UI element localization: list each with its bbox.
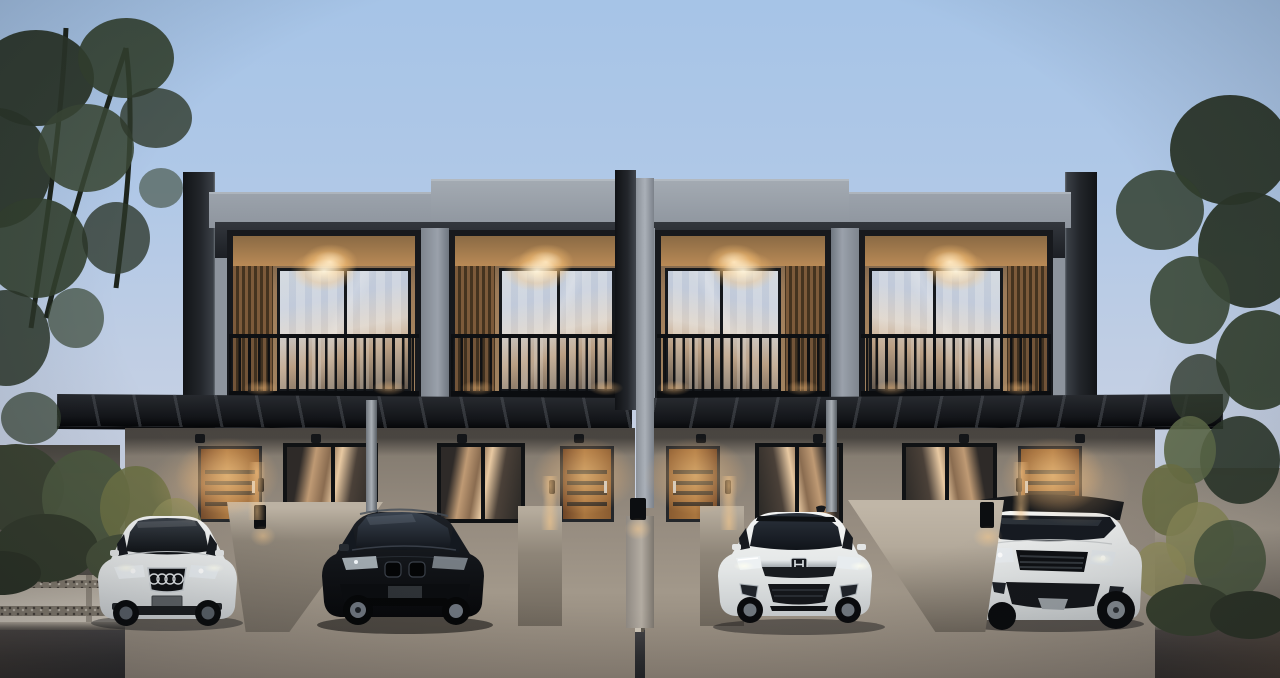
- balcony-end-unit: [859, 230, 1053, 398]
- headlight-core: [1101, 556, 1106, 561]
- ceiling-lamp: [959, 434, 969, 443]
- side-mirror: [857, 544, 866, 550]
- headlight-left: [736, 556, 762, 570]
- wheel-rim: [202, 607, 215, 620]
- balcony-divider-pillar: [831, 228, 859, 398]
- kidney-grille: [385, 562, 401, 577]
- headlight-left: [114, 565, 145, 579]
- door-handle: [673, 481, 676, 493]
- wall-sconce: [549, 480, 555, 494]
- car-white-audi-sedan: [86, 506, 248, 632]
- headlight-left: [342, 556, 378, 570]
- chin-spoiler: [770, 606, 828, 611]
- license-plate: [388, 586, 422, 598]
- twilight-townhouse-rendering: [0, 0, 1280, 678]
- balcony-inner-unit: [449, 230, 625, 398]
- balcony-downlight-glow: [509, 238, 583, 286]
- wheel-hub: [1113, 607, 1119, 613]
- fence-wall-center-left: [518, 506, 562, 626]
- wall-sconce: [725, 480, 731, 494]
- car-black-sedan: [312, 498, 498, 636]
- windshield-tint-band: [756, 516, 836, 522]
- headlight-core: [354, 560, 358, 564]
- lower-intake: [362, 598, 448, 606]
- ceiling-lamp: [574, 434, 584, 443]
- roof-parapet-raised: [431, 179, 632, 228]
- headlight-right: [189, 565, 220, 579]
- center-pillar: [636, 178, 654, 508]
- canopy-post: [826, 400, 837, 512]
- ceiling-lamp: [457, 434, 467, 443]
- car-shadow: [713, 619, 885, 635]
- wheel-rim: [449, 604, 463, 618]
- balcony-downlight-glow: [293, 238, 367, 286]
- balcony-railing: [451, 334, 623, 398]
- side-mirror: [732, 544, 741, 550]
- wheel-rim: [842, 604, 855, 617]
- wheel: [988, 602, 1016, 630]
- gate-lamp: [630, 498, 646, 520]
- kidney-grille: [409, 562, 425, 577]
- door-handle: [604, 481, 607, 493]
- headlight-right: [836, 556, 862, 570]
- balcony-railing: [861, 334, 1051, 398]
- wheel-rim: [120, 607, 133, 620]
- skid-plate: [1038, 598, 1068, 610]
- headlight-core: [998, 553, 1003, 558]
- balcony-downlight-glow: [697, 238, 771, 286]
- headlight-right: [432, 556, 468, 570]
- headlight-core: [131, 569, 136, 574]
- wheel-hub: [355, 607, 361, 613]
- balcony-inner-unit: [655, 230, 831, 398]
- balcony-divider-pillar: [421, 228, 449, 398]
- roof-parapet-raised: [648, 179, 849, 228]
- upper-grille: [762, 567, 836, 578]
- side-mirror: [110, 550, 119, 556]
- balcony-downlight-glow: [913, 238, 987, 286]
- gate-lamp: [980, 502, 994, 528]
- canopy-post: [366, 400, 377, 512]
- tree-foliage: [0, 18, 192, 444]
- wheel-rim: [744, 604, 757, 617]
- center-gate-post: [626, 516, 654, 628]
- ceiling-lamp: [311, 434, 321, 443]
- car-white-honda-civic: [706, 500, 892, 636]
- headlight-core: [199, 569, 204, 574]
- lower-grille: [768, 584, 830, 605]
- center-party-fin: [615, 170, 636, 410]
- ceiling-lamp: [813, 434, 823, 443]
- gate-lamp: [254, 505, 266, 529]
- antenna-fin: [816, 506, 826, 513]
- entry-door-wood: [560, 446, 614, 522]
- side-mirror: [339, 544, 349, 551]
- ceiling-lamp: [696, 434, 706, 443]
- balcony-railing: [657, 334, 829, 398]
- side-mirror: [215, 550, 224, 556]
